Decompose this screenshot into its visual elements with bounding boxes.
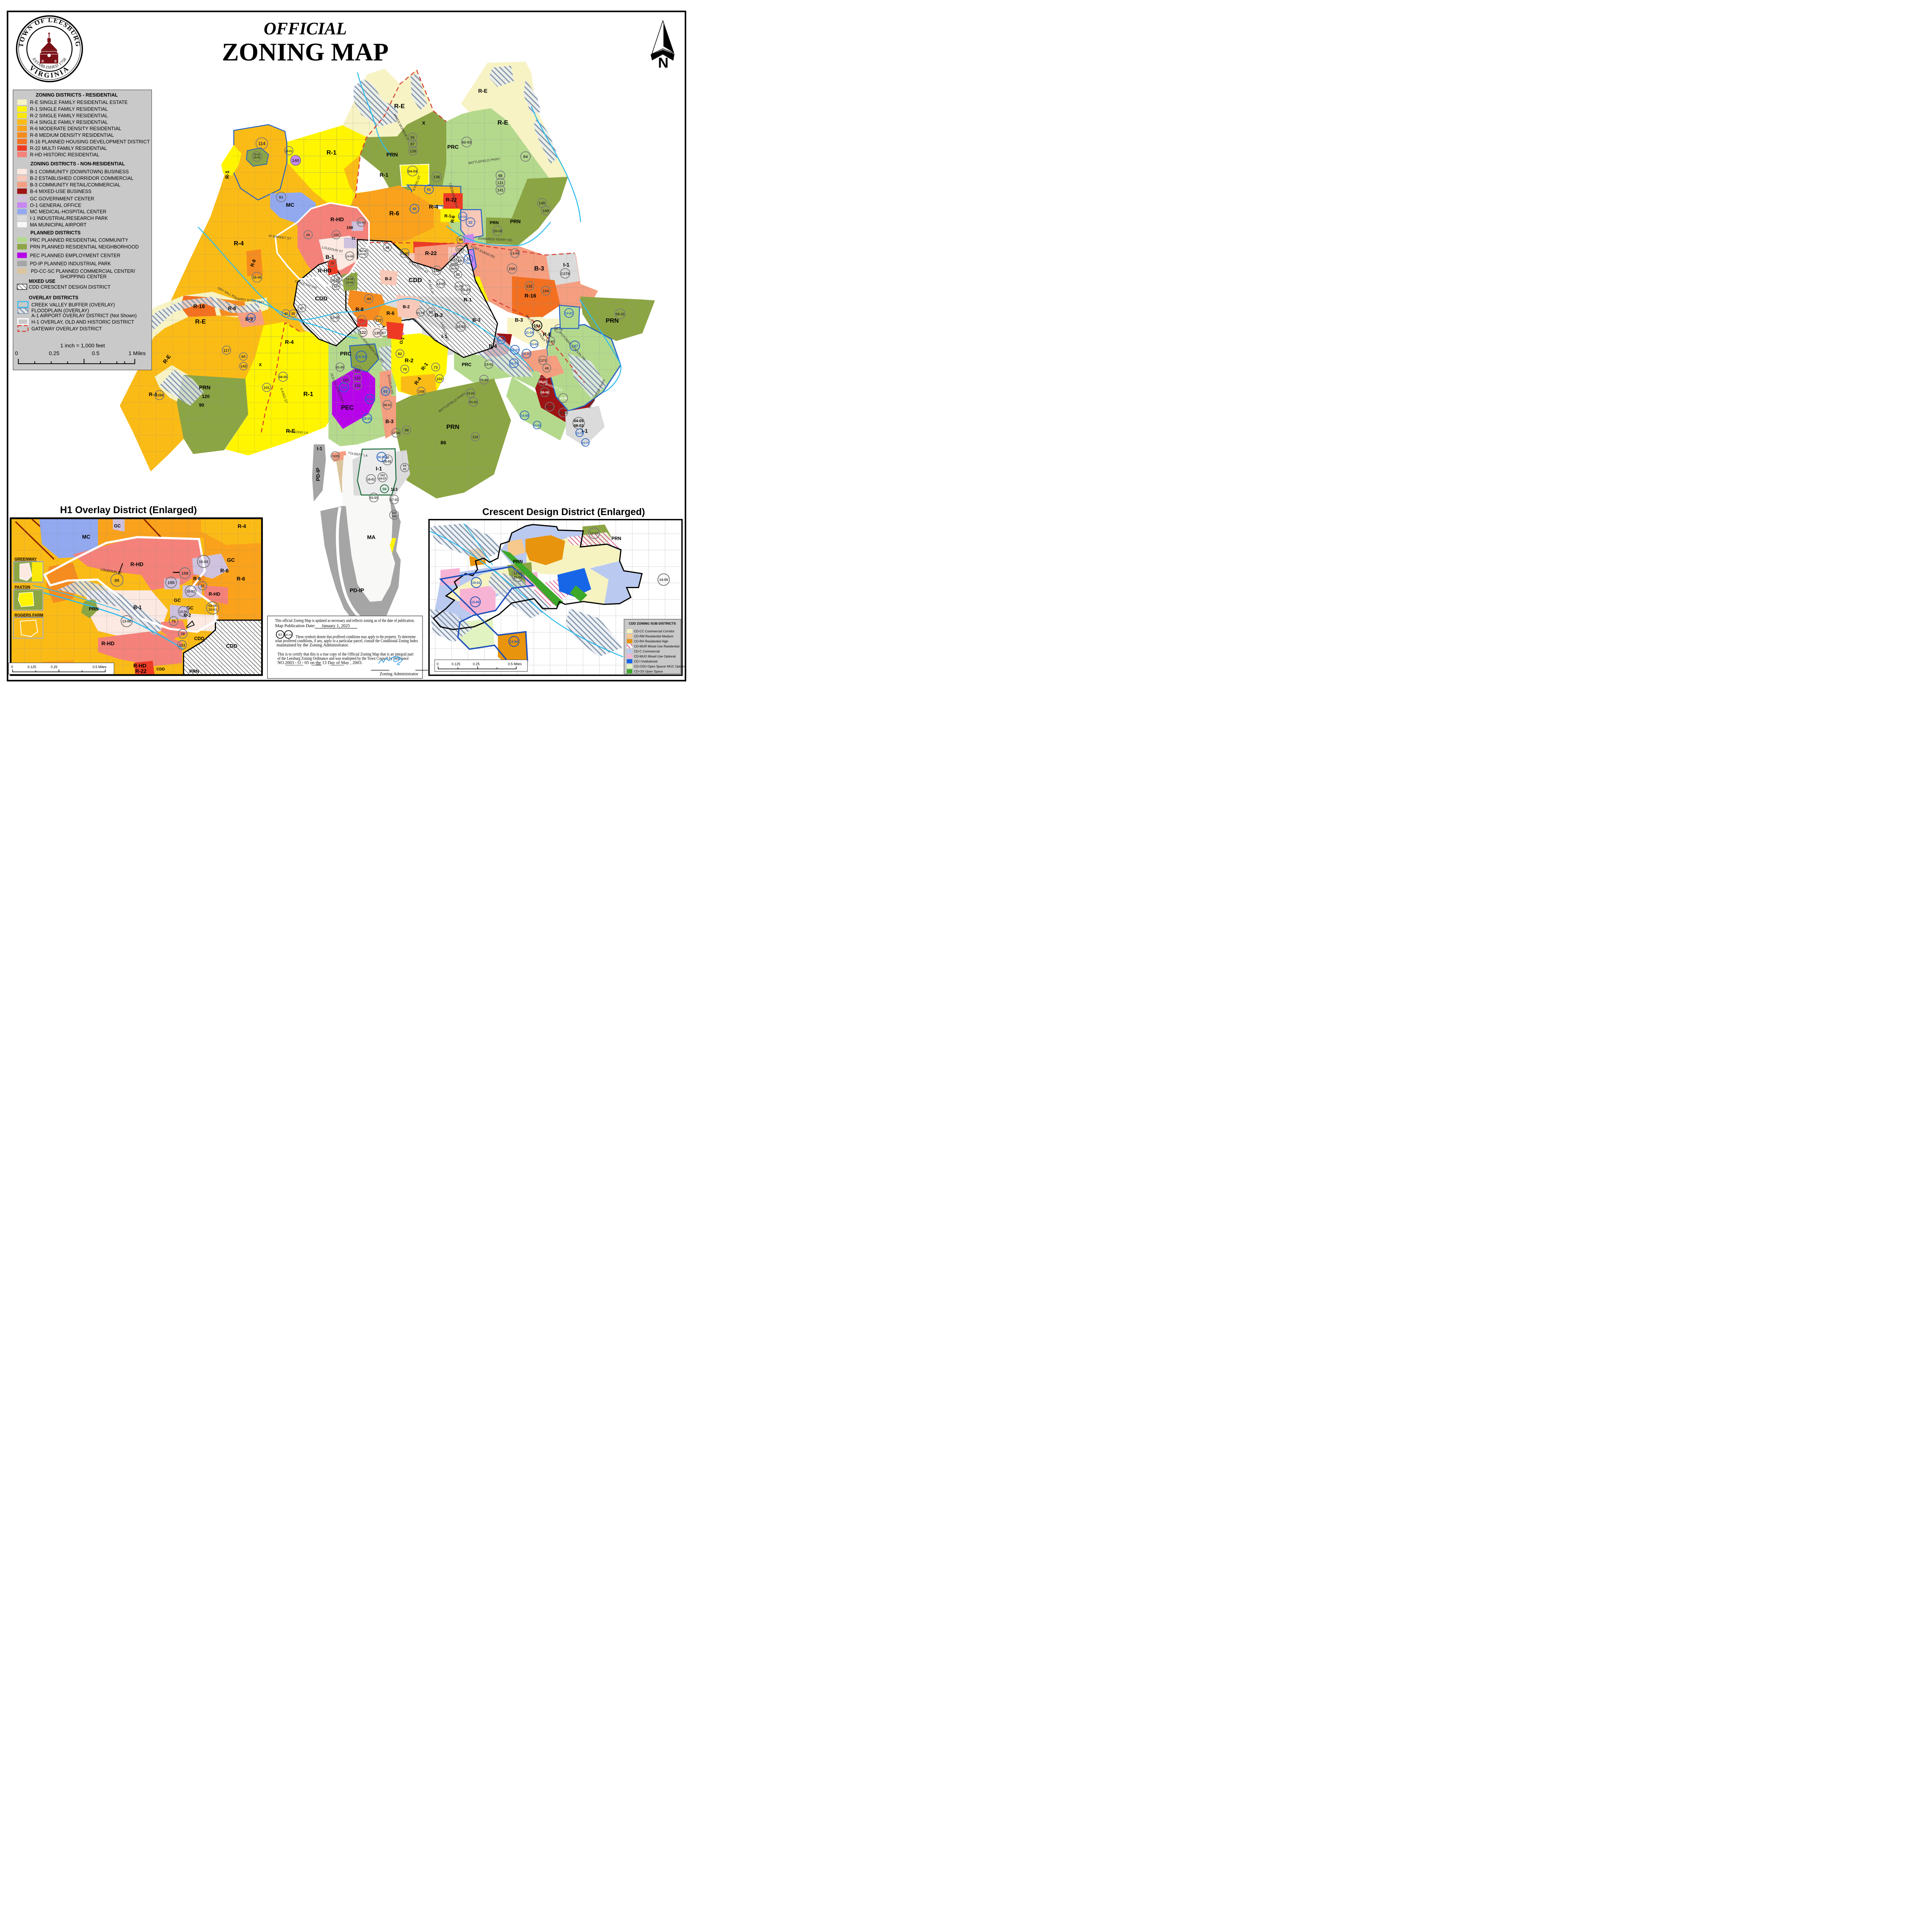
svg-text:17-01: 17-01 xyxy=(546,405,554,409)
svg-text:15-04: 15-04 xyxy=(346,281,354,284)
svg-text:08-04: 08-04 xyxy=(451,265,457,267)
svg-text:127: 127 xyxy=(375,319,382,323)
svg-text:MC: MC xyxy=(82,534,90,540)
svg-text:0: 0 xyxy=(15,350,18,356)
svg-text:108: 108 xyxy=(418,390,424,394)
svg-text:44: 44 xyxy=(367,297,371,301)
svg-text:15-07: 15-07 xyxy=(510,362,518,366)
svg-text:143: 143 xyxy=(240,364,247,369)
svg-text:117: 117 xyxy=(223,349,230,353)
svg-text:MIXED USE: MIXED USE xyxy=(29,279,56,284)
svg-text:17-06: 17-06 xyxy=(392,432,400,435)
svg-text:131: 131 xyxy=(497,181,504,185)
svg-text:R-HD HISTORIC RESIDENTIAL: R-HD HISTORIC RESIDENTIAL xyxy=(30,152,100,157)
svg-text:13-06: 13-06 xyxy=(510,640,518,644)
svg-text:89: 89 xyxy=(114,578,119,583)
svg-text:PRN: PRN xyxy=(199,384,211,391)
svg-text:12-01: 12-01 xyxy=(253,153,260,156)
svg-text:PLANNED DISTRICTS: PLANNED DISTRICTS xyxy=(31,230,81,235)
svg-text:what proffered conditions, if: what proffered conditions, if any, apply… xyxy=(275,639,418,643)
svg-text:B-3: B-3 xyxy=(386,418,394,424)
svg-text:159: 159 xyxy=(341,386,347,390)
svg-text:R-16 PLANNED HOUSING DEVELOPM: R-16 PLANNED HOUSING DEVELOPMENT DISTRIC… xyxy=(30,139,150,145)
svg-text:14-06: 14-06 xyxy=(559,397,567,400)
svg-text:PRN: PRN xyxy=(510,219,520,224)
svg-text:MA MUNICIPAL AIRPORT: MA MUNICIPAL AIRPORT xyxy=(30,222,87,228)
svg-text:04-06: 04-06 xyxy=(480,378,488,382)
svg-text:10-01: 10-01 xyxy=(209,607,217,611)
svg-text:CD-OSO Open Space/ MUC Option: CD-OSO Open Space/ MUC Option xyxy=(634,665,685,668)
svg-text:60: 60 xyxy=(241,355,246,359)
svg-text:B-2 ESTABLISHED CORRIDOR COMM: B-2 ESTABLISHED CORRIDOR COMMERCIAL xyxy=(30,176,134,181)
svg-text:These symbols denote that prof: These symbols denote that proffered cond… xyxy=(296,634,416,639)
svg-text:PRC: PRC xyxy=(340,350,352,357)
svg-text:ZONING DISTRICTS - RESIDENTIAL: ZONING DISTRICTS - RESIDENTIAL xyxy=(36,92,118,98)
svg-text:R-E: R-E xyxy=(478,88,488,94)
svg-text:00-03: 00-03 xyxy=(547,340,554,343)
svg-text:110: 110 xyxy=(472,435,478,439)
svg-text:13-05: 13-05 xyxy=(179,610,188,614)
svg-text:133: 133 xyxy=(179,643,185,648)
svg-text:R-8: R-8 xyxy=(193,576,201,581)
svg-text:R-8 MEDIUM DENSITY RESIDENTIA: R-8 MEDIUM DENSITY RESIDENTIAL xyxy=(30,133,114,138)
svg-text:0: 0 xyxy=(11,665,13,669)
svg-text:CD-CC Commercial Corridor: CD-CC Commercial Corridor xyxy=(634,630,675,633)
svg-text:A-1 AIRPORT OVERLAY DISTRICT: A-1 AIRPORT OVERLAY DISTRICT (Not Shown) xyxy=(31,313,137,318)
svg-text:0.25: 0.25 xyxy=(51,665,58,669)
svg-text:70: 70 xyxy=(403,367,407,372)
svg-text:R-22 MULTI FAMILY RESIDENTIAL: R-22 MULTI FAMILY RESIDENTIAL xyxy=(30,146,107,151)
svg-text:13-02: 13-02 xyxy=(456,325,465,329)
svg-text:133: 133 xyxy=(333,285,339,288)
svg-text:15-04: 15-04 xyxy=(514,575,522,579)
svg-text:R-2 SINGLE FAMILY RESIDENTIAL: R-2 SINGLE FAMILY RESIDENTIAL xyxy=(30,113,108,119)
svg-text:13-06: 13-06 xyxy=(331,316,339,320)
svg-text:01-02: 01-02 xyxy=(469,401,478,404)
svg-text:PAXTON: PAXTON xyxy=(15,585,31,590)
svg-text:158: 158 xyxy=(347,226,353,230)
svg-text:150: 150 xyxy=(509,267,515,271)
svg-text:03-06: 03-06 xyxy=(209,604,217,607)
svg-text:00-06: 00-06 xyxy=(378,456,386,459)
svg-text:C229: C229 xyxy=(332,455,339,458)
svg-text:16-01: 16-01 xyxy=(367,478,375,481)
svg-text:20-03: 20-03 xyxy=(461,288,470,292)
svg-text:78: 78 xyxy=(337,277,340,281)
svg-text:31: 31 xyxy=(201,584,205,588)
svg-text:13-05: 13-05 xyxy=(346,255,353,258)
svg-text:18-06: 18-06 xyxy=(252,276,261,279)
svg-text:CDD: CDD xyxy=(409,277,422,284)
svg-text:R-4: R-4 xyxy=(429,204,439,210)
svg-text:15-03: 15-03 xyxy=(199,560,208,564)
svg-text:17-02: 17-02 xyxy=(390,498,398,502)
svg-text:14-05: 14-05 xyxy=(437,282,445,286)
svg-text:86: 86 xyxy=(440,440,446,446)
svg-text:PRC: PRC xyxy=(462,362,472,367)
svg-text:01-05: 01-05 xyxy=(336,366,344,369)
svg-text:GC: GC xyxy=(114,524,121,529)
svg-text:10-03: 10-03 xyxy=(559,411,567,415)
svg-text:R-HD: R-HD xyxy=(102,641,115,646)
svg-text:116: 116 xyxy=(354,369,360,373)
svg-text:N: N xyxy=(658,54,668,71)
svg-text:0: 0 xyxy=(437,662,439,666)
svg-text:0.5 Miles: 0.5 Miles xyxy=(508,662,522,666)
svg-text:06-22: 06-22 xyxy=(616,312,624,316)
svg-text:82: 82 xyxy=(398,352,402,356)
svg-text:R-1: R-1 xyxy=(380,172,389,178)
svg-text:18-01: 18-01 xyxy=(363,417,371,420)
svg-text:12-04: 12-04 xyxy=(590,532,599,536)
svg-text:101: 101 xyxy=(264,386,270,390)
svg-text:73: 73 xyxy=(434,366,438,370)
svg-text:FLOODPLAIN (OVERLAY): FLOODPLAIN (OVERLAY) xyxy=(31,308,89,313)
svg-text:00-00: 00-00 xyxy=(285,633,292,636)
svg-text:GREENWAY: GREENWAY xyxy=(15,557,37,561)
svg-text:CD-C Commercial: CD-C Commercial xyxy=(634,650,660,653)
svg-text:11-01: 11-01 xyxy=(455,285,463,288)
svg-text:12-02: 12-02 xyxy=(451,268,457,270)
svg-text:H1 Overlay District (Enlarged): H1 Overlay District (Enlarged) xyxy=(60,505,197,515)
svg-text:05-01: 05-01 xyxy=(366,397,374,401)
svg-text:PRN: PRN xyxy=(446,424,459,430)
svg-text:R-HD: R-HD xyxy=(131,561,144,567)
svg-text:11-04: 11-04 xyxy=(526,331,534,335)
svg-text:75: 75 xyxy=(172,620,176,624)
svg-text:I-1: I-1 xyxy=(317,446,322,451)
svg-text:CDD: CDD xyxy=(226,643,237,649)
svg-text:R-4 SINGLE FAMILY RESIDENTIAL: R-4 SINGLE FAMILY RESIDENTIAL xyxy=(30,119,108,125)
svg-text:0.125: 0.125 xyxy=(452,662,461,666)
svg-text:O-1 GENERAL OFFICE: O-1 GENERAL OFFICE xyxy=(30,202,82,208)
svg-text:10-01: 10-01 xyxy=(360,253,367,256)
svg-text:0.5: 0.5 xyxy=(92,350,100,356)
svg-text:141: 141 xyxy=(497,188,504,192)
svg-text:49: 49 xyxy=(545,367,549,371)
svg-text:ZONING MAP: ZONING MAP xyxy=(222,38,388,66)
svg-text:January 1, 2025: January 1, 2025 xyxy=(322,624,350,628)
svg-text:B-2: B-2 xyxy=(403,305,410,310)
svg-text:R-6: R-6 xyxy=(386,310,395,316)
svg-text:62: 62 xyxy=(456,273,460,277)
svg-text:R-E: R-E xyxy=(195,319,206,325)
svg-text:14-01: 14-01 xyxy=(565,312,573,315)
svg-text:GC GOVERNMENT CENTER: GC GOVERNMENT CENTER xyxy=(30,196,94,201)
svg-text:08-01: 08-01 xyxy=(383,403,391,407)
svg-text:32: 32 xyxy=(466,257,471,262)
svg-text:66: 66 xyxy=(498,174,503,178)
svg-text:R-HD: R-HD xyxy=(209,591,220,597)
svg-text:03-06: 03-06 xyxy=(360,250,367,253)
svg-text:PRC PLANNED RESIDENTIAL COMMU: PRC PLANNED RESIDENTIAL COMMUNITY xyxy=(30,238,129,243)
svg-text:H-1 OVERLAY, OLD AND HISTORIC: H-1 OVERLAY, OLD AND HISTORIC DISTRICT xyxy=(31,320,134,325)
svg-text:Map Publication Date:: Map Publication Date: xyxy=(275,624,315,628)
svg-text:R-6: R-6 xyxy=(389,211,400,217)
svg-text:08-02: 08-02 xyxy=(253,156,260,159)
svg-text:R-4: R-4 xyxy=(285,339,294,345)
svg-text:89: 89 xyxy=(306,233,310,237)
svg-text:13-06: 13-06 xyxy=(471,600,480,604)
svg-text:13-01: 13-01 xyxy=(485,363,493,366)
svg-text:B-3: B-3 xyxy=(515,317,523,323)
svg-text:120: 120 xyxy=(202,394,210,399)
svg-text:PEC PLANNED EMPLOYMENT CENTER: PEC PLANNED EMPLOYMENT CENTER xyxy=(30,253,121,258)
svg-text:R-1: R-1 xyxy=(327,150,337,156)
svg-text:B-4: B-4 xyxy=(489,343,497,349)
svg-text:81: 81 xyxy=(403,468,406,471)
svg-text:146: 146 xyxy=(434,269,440,273)
svg-text:CD-RH Residential High: CD-RH Residential High xyxy=(634,640,668,643)
svg-text:CDD: CDD xyxy=(194,636,204,641)
svg-text:0.5 Miles: 0.5 Miles xyxy=(92,665,107,669)
svg-text:65: 65 xyxy=(458,259,462,263)
svg-text:PRN: PRN xyxy=(189,668,199,674)
svg-text:CDD: CDD xyxy=(315,296,328,302)
svg-text:10-02: 10-02 xyxy=(522,352,531,356)
svg-text:14-08: 14-08 xyxy=(520,414,529,418)
svg-text:CD-MUO Mixed Use Optional: CD-MUO Mixed Use Optional xyxy=(634,655,676,658)
svg-text:PRN: PRN xyxy=(490,221,499,225)
svg-text:R-1 SINGLE FAMILY RESIDENTIAL: R-1 SINGLE FAMILY RESIDENTIAL xyxy=(30,107,108,112)
svg-text:01-03: 01-03 xyxy=(370,496,378,500)
svg-text:0.125: 0.125 xyxy=(27,665,36,669)
svg-text:02-03: 02-03 xyxy=(462,141,471,145)
svg-text:PD-IP PLANNED INDUSTRIAL PARK: PD-IP PLANNED INDUSTRIAL PARK xyxy=(30,261,111,267)
svg-text:C278: C278 xyxy=(561,272,570,276)
svg-text:0.25: 0.25 xyxy=(473,662,480,666)
svg-text:92: 92 xyxy=(427,188,431,192)
svg-text:SHOPPING CENTER: SHOPPING CENTER xyxy=(60,274,107,279)
svg-text:PRN: PRN xyxy=(386,151,398,158)
svg-text:This is to certify that this i: This is to certify that this is a true c… xyxy=(277,652,414,657)
svg-text:CD-RM Residential Medium: CD-RM Residential Medium xyxy=(634,635,673,638)
svg-text:15-02: 15-02 xyxy=(186,589,195,593)
svg-text:104: 104 xyxy=(543,289,549,294)
svg-text:OVERLAY DISTRICTS: OVERLAY DISTRICTS xyxy=(29,295,79,300)
svg-text:PRN: PRN xyxy=(606,318,619,324)
svg-text:20-02: 20-02 xyxy=(459,215,466,219)
svg-text:B-3 COMMUNITY RETAIL/COMMERCI: B-3 COMMUNITY RETAIL/COMMERCIAL xyxy=(30,182,121,187)
svg-text:MA: MA xyxy=(367,534,376,540)
svg-text:R-1: R-1 xyxy=(464,297,472,303)
svg-text:X: X xyxy=(259,363,262,367)
svg-text:94: 94 xyxy=(459,238,463,242)
svg-text:90: 90 xyxy=(199,403,204,408)
svg-text:R-2: R-2 xyxy=(405,357,414,364)
svg-text:OFFICIAL: OFFICIAL xyxy=(264,19,347,38)
svg-text:48: 48 xyxy=(385,246,389,250)
svg-text:ROGERS FARM: ROGERS FARM xyxy=(15,613,43,617)
svg-text:CDD ZONING SUB-DISTRICTS: CDD ZONING SUB-DISTRICTS xyxy=(629,622,676,626)
svg-text:13-03: 13-03 xyxy=(466,392,474,395)
svg-text:138: 138 xyxy=(354,384,361,388)
svg-text:R-HD: R-HD xyxy=(318,267,332,274)
svg-text:91: 91 xyxy=(279,195,284,200)
svg-text:14-05: 14-05 xyxy=(659,578,668,582)
svg-text:109: 109 xyxy=(543,209,549,213)
svg-text:CD-I Institutional: CD-I Institutional xyxy=(634,660,658,663)
svg-text:R-4: R-4 xyxy=(234,240,244,247)
svg-text:GATEWAY OVERLAY DISTRICT: GATEWAY OVERLAY DISTRICT xyxy=(31,326,102,332)
svg-text:PD-IP: PD-IP xyxy=(350,587,364,594)
svg-text:13-08: 13-08 xyxy=(122,619,131,623)
svg-text:83: 83 xyxy=(278,633,282,637)
svg-text:0.25: 0.25 xyxy=(49,350,59,356)
svg-text:114: 114 xyxy=(258,142,265,146)
svg-text:PRN: PRN xyxy=(513,559,523,565)
svg-text:22-10: 22-10 xyxy=(582,442,589,445)
svg-text:22-07: 22-07 xyxy=(247,316,255,320)
svg-text:64: 64 xyxy=(403,464,406,468)
svg-text:R-6 MODERATE DENSITY RESIDENT: R-6 MODERATE DENSITY RESIDENTIAL xyxy=(30,126,121,131)
svg-text:23-04: 23-04 xyxy=(357,355,366,359)
svg-text:GC: GC xyxy=(227,557,235,563)
svg-text:01-04: 01-04 xyxy=(417,311,424,315)
svg-text:R-16: R-16 xyxy=(525,293,537,299)
svg-text:Zoning Administrator: Zoning Administrator xyxy=(380,672,418,677)
svg-text:C272: C272 xyxy=(539,359,547,362)
svg-text:35: 35 xyxy=(291,312,295,316)
svg-text:I-1 INDUSTRIAL/RESEARCH PARK: I-1 INDUSTRIAL/RESEARCH PARK xyxy=(30,216,109,221)
svg-text:50: 50 xyxy=(429,311,433,315)
svg-text:76: 76 xyxy=(359,318,364,323)
svg-text:98: 98 xyxy=(405,429,409,433)
svg-text:155: 155 xyxy=(168,581,175,585)
svg-text:B-1 COMMUNITY (DOWNTOWN) BUSI: B-1 COMMUNITY (DOWNTOWN) BUSINESS xyxy=(30,169,129,175)
svg-text:CDD CRESCENT DESIGN DISTRICT: CDD CRESCENT DESIGN DISTRICT xyxy=(29,284,111,290)
svg-text:B-3: B-3 xyxy=(534,265,544,272)
svg-text:15-03: 15-03 xyxy=(357,221,365,224)
svg-text:PD-IP: PD-IP xyxy=(315,468,321,481)
svg-text:04-07: 04-07 xyxy=(379,477,386,480)
svg-text:This official Zoning Map is up: This official Zoning Map is updated as n… xyxy=(275,619,415,623)
svg-text:67: 67 xyxy=(382,331,386,335)
svg-text:12-04: 12-04 xyxy=(401,252,409,255)
svg-text:B-4 MIXED-USE BUSINESS: B-4 MIXED-USE BUSINESS xyxy=(30,189,92,194)
svg-text:132: 132 xyxy=(526,284,533,289)
svg-text:NO.2003 - O - 05 on the 13: NO.2003 - O - 05 on the 13 Day of May , … xyxy=(277,661,362,665)
svg-text:PRC: PRC xyxy=(447,144,459,150)
svg-text:R-E: R-E xyxy=(498,120,509,126)
svg-text:R-8: R-8 xyxy=(355,306,364,312)
svg-text:13-04: 13-04 xyxy=(511,252,519,255)
svg-text:CREEK VALLEY BUFFER (OVERLAY): CREEK VALLEY BUFFER (OVERLAY) xyxy=(31,302,115,308)
svg-text:PRN PLANNED RESIDENTIAL NEIGH: PRN PLANNED RESIDENTIAL NEIGHBORHOOD xyxy=(30,244,139,250)
svg-text:22-10: 22-10 xyxy=(576,432,583,435)
svg-text:15-10: 15-10 xyxy=(493,229,502,233)
svg-text:47: 47 xyxy=(300,306,304,310)
svg-text:31: 31 xyxy=(352,236,355,240)
svg-text:87: 87 xyxy=(410,143,415,147)
svg-text:135: 135 xyxy=(374,332,381,336)
svg-text:100: 100 xyxy=(457,248,463,252)
svg-text:CD-OS Open Space: CD-OS Open Space xyxy=(634,670,663,673)
svg-text:40: 40 xyxy=(284,312,288,316)
svg-text:I-1: I-1 xyxy=(563,262,570,268)
svg-text:107: 107 xyxy=(392,511,397,515)
svg-text:R-6: R-6 xyxy=(220,568,229,573)
svg-text:12-03: 12-03 xyxy=(514,571,522,575)
svg-text:32: 32 xyxy=(468,221,473,225)
svg-text:155: 155 xyxy=(333,233,339,237)
svg-text:PD-CC-SC PLANNED COMMERCIAL CE: PD-CC-SC PLANNED COMMERCIAL CENTER/ xyxy=(31,269,135,274)
svg-text:R-1: R-1 xyxy=(444,214,451,219)
svg-text:145: 145 xyxy=(539,201,545,206)
svg-text:B-1: B-1 xyxy=(133,604,142,610)
svg-text:R-4: R-4 xyxy=(238,523,246,529)
svg-text:04-05: 04-05 xyxy=(574,419,584,423)
svg-text:122: 122 xyxy=(360,331,366,335)
svg-text:55: 55 xyxy=(410,136,415,140)
svg-text:R-16: R-16 xyxy=(193,303,205,310)
svg-text:22-06: 22-06 xyxy=(534,425,541,427)
svg-text:04-04: 04-04 xyxy=(408,170,417,174)
svg-text:I-1: I-1 xyxy=(376,466,383,472)
svg-text:113: 113 xyxy=(391,487,398,492)
svg-text:1 Miles: 1 Miles xyxy=(129,350,146,356)
svg-text:B-2: B-2 xyxy=(385,277,392,281)
svg-text:R-HD: R-HD xyxy=(330,216,344,223)
svg-text:MC MEDICAL-HOSPITAL CENTER: MC MEDICAL-HOSPITAL CENTER xyxy=(30,209,107,214)
svg-text:102: 102 xyxy=(437,377,443,381)
svg-text:08-03: 08-03 xyxy=(574,424,584,428)
svg-text:152: 152 xyxy=(380,474,385,477)
svg-text:09-08: 09-08 xyxy=(541,391,549,395)
svg-text:R-1: R-1 xyxy=(303,391,313,398)
svg-text:136: 136 xyxy=(433,175,440,180)
svg-text:Crescent Design District (Enla: Crescent Design District (Enlarged) xyxy=(482,507,645,517)
svg-text:78: 78 xyxy=(180,632,185,636)
svg-text:08-05: 08-05 xyxy=(279,375,287,379)
svg-text:130: 130 xyxy=(354,376,361,381)
svg-text:B-2: B-2 xyxy=(435,312,443,318)
svg-text:20-01: 20-01 xyxy=(286,150,293,153)
svg-text:161: 161 xyxy=(343,378,349,383)
svg-text:1 inch = 1,000 feet: 1 inch = 1,000 feet xyxy=(60,342,105,349)
svg-text:58: 58 xyxy=(383,487,387,492)
svg-text:63: 63 xyxy=(383,390,388,394)
svg-text:PEC: PEC xyxy=(341,405,354,411)
svg-text:84: 84 xyxy=(523,155,528,159)
svg-text:96: 96 xyxy=(412,207,417,211)
svg-text:R-6: R-6 xyxy=(237,576,245,582)
svg-text:maintained by the Zoning Admin: maintained by the Zoning Administrator. xyxy=(277,643,349,648)
svg-text:19-01: 19-01 xyxy=(472,581,481,585)
svg-text:MC: MC xyxy=(286,202,294,208)
svg-text:R-22: R-22 xyxy=(425,250,437,256)
svg-text:18-03: 18-03 xyxy=(511,349,519,352)
svg-text:22-05: 22-05 xyxy=(498,340,505,342)
svg-text:R-E: R-E xyxy=(394,103,405,110)
svg-text:140: 140 xyxy=(292,158,299,163)
svg-text:R-22: R-22 xyxy=(135,668,146,674)
svg-text:B-3: B-3 xyxy=(473,317,481,323)
svg-text:75: 75 xyxy=(331,262,334,265)
svg-text:GC: GC xyxy=(174,598,181,603)
svg-text:X: X xyxy=(422,121,425,126)
svg-text:R-8: R-8 xyxy=(228,306,236,311)
svg-text:PRN: PRN xyxy=(89,606,99,612)
svg-text:ZONING DISTRICTS - NON-RESIDEN: ZONING DISTRICTS - NON-RESIDENTIAL xyxy=(31,161,125,167)
svg-text:CDD: CDD xyxy=(156,667,165,672)
svg-text:R-E SINGLE FAMILY RESIDENTIAL: R-E SINGLE FAMILY RESIDENTIAL ESTATE xyxy=(30,100,128,105)
svg-text:C288: C288 xyxy=(155,393,164,397)
svg-text:CD-MUR Mixed Use Residential: CD-MUR Mixed Use Residential xyxy=(634,645,680,648)
svg-text:R-1: R-1 xyxy=(224,171,230,179)
svg-text:160: 160 xyxy=(392,515,397,518)
svg-text:158: 158 xyxy=(181,571,188,576)
